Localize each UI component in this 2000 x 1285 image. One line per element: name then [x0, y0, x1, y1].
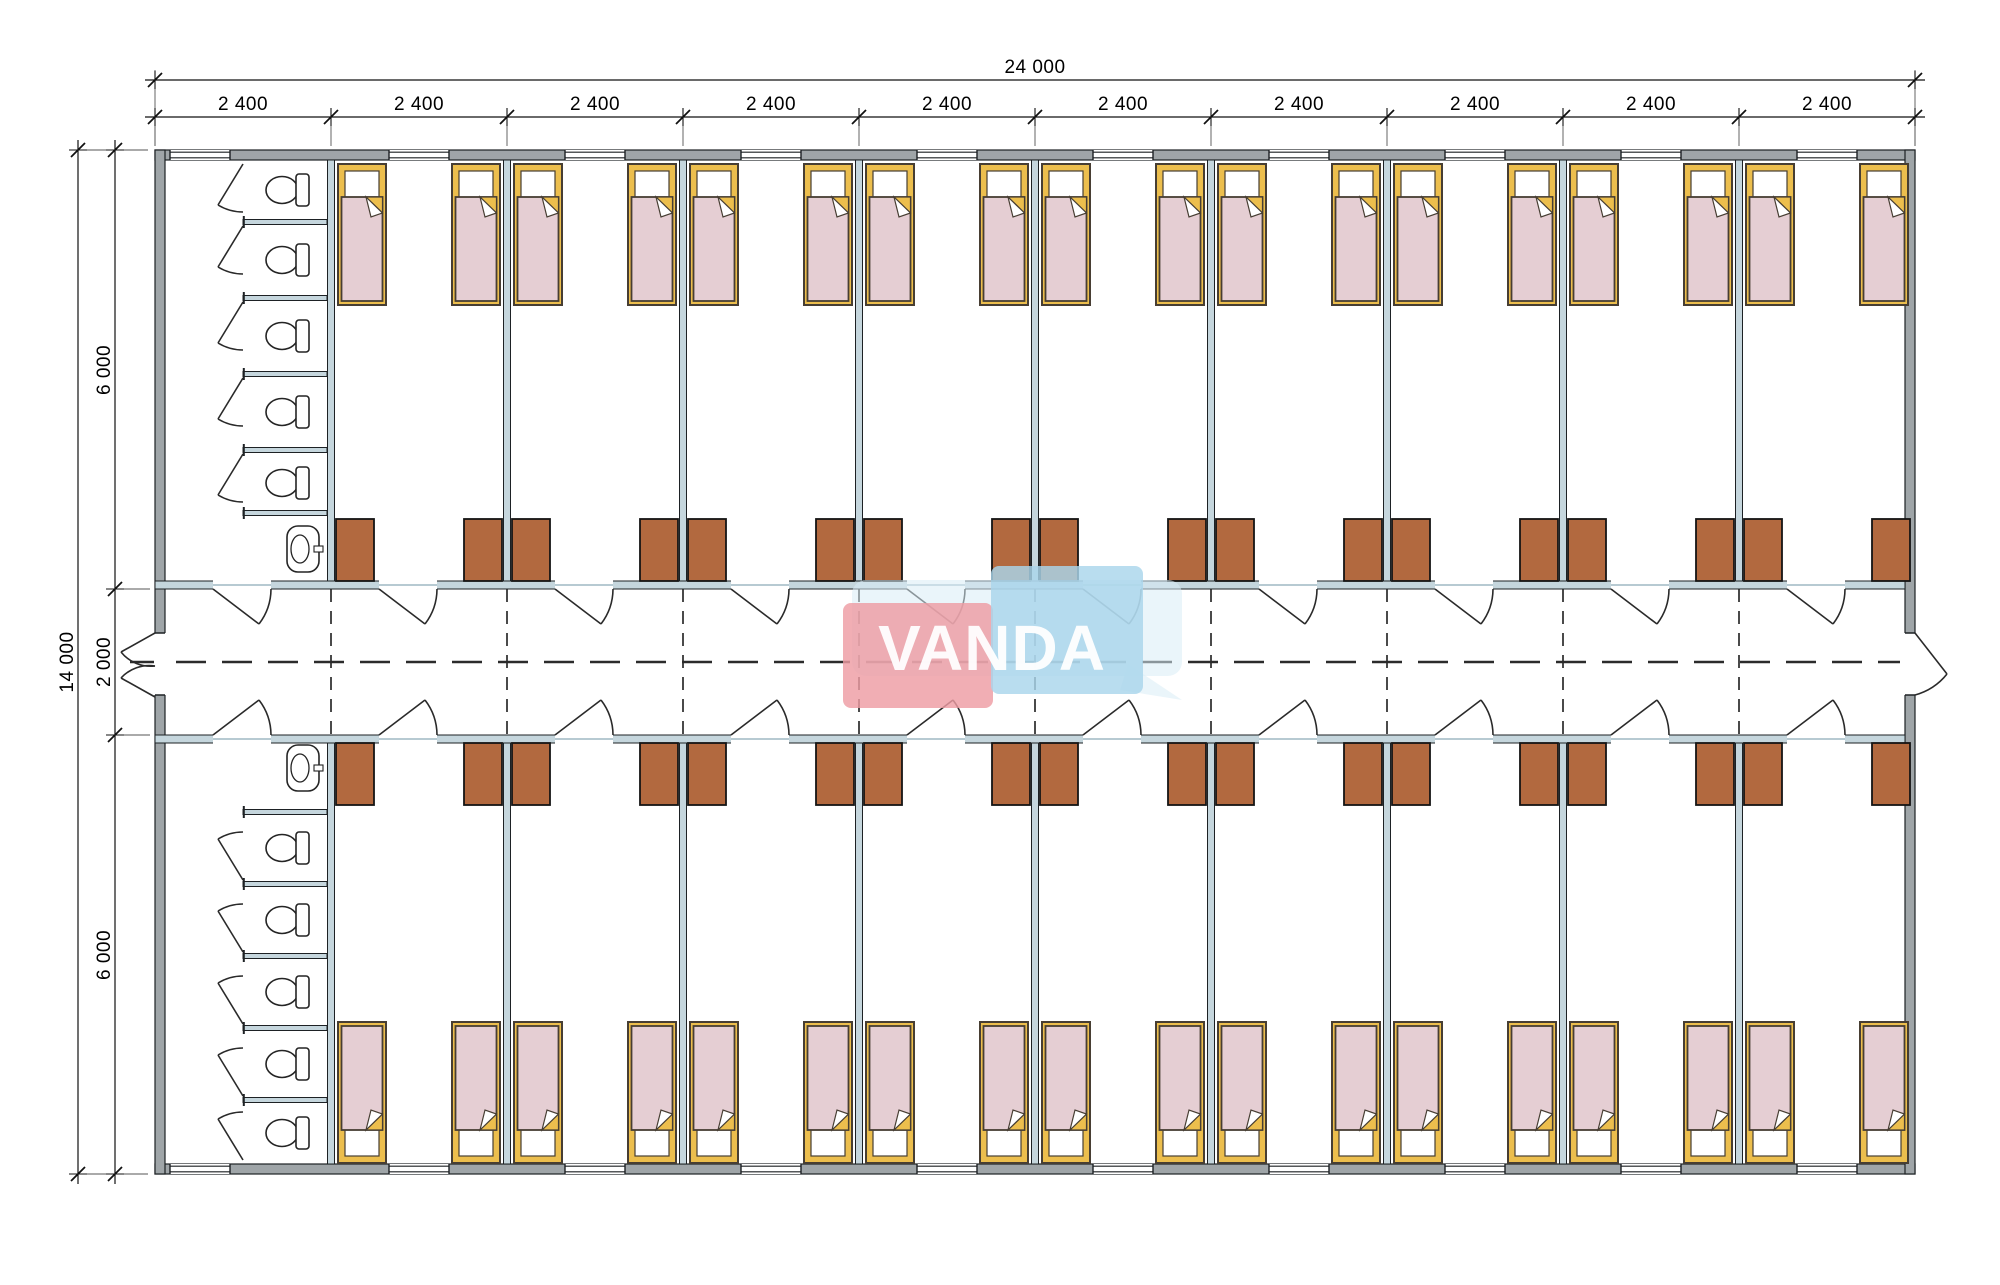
- bed-icon: [980, 164, 1028, 305]
- wardrobe-icon: [1040, 743, 1078, 805]
- wardrobe-icon: [336, 519, 374, 581]
- door-swings-bottom-row: [213, 700, 1845, 735]
- room-divider-wall: [1560, 160, 1567, 581]
- window-icon: [1445, 150, 1505, 160]
- bed-icon: [1570, 1022, 1618, 1163]
- bed-icon: [338, 1022, 386, 1163]
- window-icon: [1269, 1164, 1329, 1174]
- door-swing-icon: [731, 700, 789, 735]
- wardrobe-icon: [640, 519, 678, 581]
- room-divider-wall: [1384, 743, 1391, 1164]
- stall-partition: [243, 368, 327, 380]
- wardrobe-icon: [1216, 519, 1254, 581]
- bed-icon: [1218, 164, 1266, 305]
- room-divider-wall: [1208, 160, 1215, 581]
- bed-icon: [1860, 1022, 1908, 1163]
- door-swing-icon: [379, 700, 437, 735]
- toilet-icon: [266, 174, 309, 206]
- bed-icon: [1508, 164, 1556, 305]
- toilet-icon: [266, 1048, 309, 1080]
- door-swing-icon: [1083, 700, 1141, 735]
- wardrobe-icon: [336, 743, 374, 805]
- toilet-icon: [266, 904, 309, 936]
- wardrobe-icon: [1872, 519, 1910, 581]
- wardrobe-icon: [1392, 519, 1430, 581]
- wardrobe-icon: [512, 519, 550, 581]
- bed-icon: [980, 1022, 1028, 1163]
- bed-icon: [1746, 164, 1794, 305]
- sink-icon: [287, 745, 323, 791]
- room-divider-wall: [856, 160, 863, 581]
- room-divider-wall: [1560, 743, 1567, 1164]
- bed-icon: [1570, 164, 1618, 305]
- wardrobe-icon: [864, 519, 902, 581]
- toilet-icon: [266, 467, 309, 499]
- stall-partition: [243, 292, 327, 304]
- stall-partition: [243, 806, 327, 818]
- window-icon: [1621, 1164, 1681, 1174]
- bed-icon: [1156, 164, 1204, 305]
- wardrobe-icon: [816, 519, 854, 581]
- door-swing-icon: [1435, 700, 1493, 735]
- dim-label-overall-height: 14 000: [57, 631, 78, 692]
- window-icon: [565, 1164, 625, 1174]
- window-icon: [1093, 150, 1153, 160]
- bed-icon: [866, 164, 914, 305]
- door-swing-icon: [1611, 700, 1669, 735]
- wardrobe-icon: [688, 743, 726, 805]
- door-swing-icon: [1259, 700, 1317, 735]
- window-icon: [170, 1164, 230, 1174]
- room-divider-wall: [328, 160, 335, 581]
- bed-icon: [1684, 164, 1732, 305]
- wardrobe-icon: [1168, 743, 1206, 805]
- door-swing-icon: [1259, 589, 1317, 624]
- bed-icon: [866, 1022, 914, 1163]
- sink-icon: [287, 526, 323, 572]
- stall-door-swing-icon: [218, 454, 243, 502]
- bed-icon: [1218, 1022, 1266, 1163]
- dim-label-bay: 2 400: [922, 94, 972, 115]
- stall-door-swing-icon: [218, 976, 243, 1024]
- stall-door-swing-icon: [218, 1112, 243, 1160]
- bed-icon: [804, 164, 852, 305]
- stall-door-swing-icon: [218, 226, 243, 274]
- wardrobe-icon: [1520, 519, 1558, 581]
- bed-icon: [514, 1022, 562, 1163]
- dim-label-segment: 2 000: [94, 637, 115, 687]
- door-swing-icon: [1611, 589, 1669, 624]
- wardrobe-icon: [816, 743, 854, 805]
- bed-icon: [1042, 164, 1090, 305]
- stall-door-swing-icon: [218, 1048, 243, 1096]
- dim-label-bay: 2 400: [1098, 94, 1148, 115]
- door-swing-icon: [379, 589, 437, 624]
- bed-icon: [690, 1022, 738, 1163]
- door-swing-icon: [731, 589, 789, 624]
- room-divider-wall: [1032, 160, 1039, 581]
- toilet-icon: [266, 320, 309, 352]
- window-icon: [389, 1164, 449, 1174]
- bed-icon: [628, 164, 676, 305]
- toilet-icon: [266, 244, 309, 276]
- room-divider-wall: [504, 743, 511, 1164]
- dim-label-bay: 2 400: [1626, 94, 1676, 115]
- window-icon: [741, 1164, 801, 1174]
- bed-icon: [1684, 1022, 1732, 1163]
- bed-icon: [1508, 1022, 1556, 1163]
- stall-partition: [243, 1022, 327, 1034]
- stall-door-swing-icon: [218, 378, 243, 426]
- wardrobe-icon: [864, 743, 902, 805]
- window-icon: [917, 1164, 977, 1174]
- bed-icon: [1332, 1022, 1380, 1163]
- watermark-brand-text: VANDA: [878, 612, 1106, 684]
- wardrobe-icon: [1696, 743, 1734, 805]
- wardrobe-icon: [1568, 743, 1606, 805]
- room-divider-wall: [504, 160, 511, 581]
- bed-icon: [452, 1022, 500, 1163]
- wardrobe-icon: [1344, 743, 1382, 805]
- dim-label-bay: 2 400: [1450, 94, 1500, 115]
- toilet-icon: [266, 976, 309, 1008]
- wardrobe-icon: [464, 743, 502, 805]
- beds-top-row: [338, 164, 1908, 305]
- wardrobe-icon: [1216, 743, 1254, 805]
- bed-icon: [452, 164, 500, 305]
- watermark: VANDA: [843, 566, 1182, 708]
- bed-icon: [1394, 1022, 1442, 1163]
- door-swing-icon: [1787, 589, 1845, 624]
- window-icon: [389, 150, 449, 160]
- door-swing-icon: [213, 700, 271, 735]
- dim-label-bay: 2 400: [570, 94, 620, 115]
- bed-icon: [1860, 164, 1908, 305]
- room-divider-wall: [1384, 160, 1391, 581]
- bed-icon: [338, 164, 386, 305]
- stall-door-swing-icon: [218, 302, 243, 350]
- room-divider-wall: [856, 743, 863, 1164]
- dim-label-bay: 2 400: [1274, 94, 1324, 115]
- dim-label-segment: 6 000: [94, 345, 115, 395]
- door-swing-icon: [1787, 700, 1845, 735]
- wardrobes-bottom-row: [336, 743, 1910, 805]
- bed-icon: [1746, 1022, 1794, 1163]
- beds-bottom-row: [338, 1022, 1908, 1163]
- bed-icon: [1042, 1022, 1090, 1163]
- wardrobe-icon: [1392, 743, 1430, 805]
- room-divider-wall: [1736, 743, 1743, 1164]
- wardrobe-icon: [1696, 519, 1734, 581]
- door-swing-icon: [1435, 589, 1493, 624]
- wardrobe-icon: [992, 743, 1030, 805]
- bed-icon: [690, 164, 738, 305]
- room-divider-wall: [680, 160, 687, 581]
- stall-partition: [243, 507, 327, 519]
- room-divider-wall: [328, 743, 335, 1164]
- room-divider-wall: [1736, 160, 1743, 581]
- window-icon: [1797, 1164, 1857, 1174]
- dim-label-segment: 6 000: [94, 930, 115, 980]
- window-icon: [917, 150, 977, 160]
- floor-plan-page: 24 000 2 400 2 400 2 400 2 400 2 400 2 4…: [0, 0, 2000, 1285]
- stall-partition: [243, 444, 327, 456]
- window-icon: [1093, 1164, 1153, 1174]
- wardrobe-icon: [1568, 519, 1606, 581]
- stall-partition: [243, 216, 327, 228]
- toilet-icon: [266, 1117, 309, 1149]
- wardrobe-icon: [1744, 743, 1782, 805]
- stall-partition: [243, 1094, 327, 1106]
- window-icon: [170, 150, 230, 160]
- window-icon: [1621, 150, 1681, 160]
- wardrobe-icon: [640, 743, 678, 805]
- dim-label-bay: 2 400: [218, 94, 268, 115]
- room-divider-wall: [1208, 743, 1215, 1164]
- window-icon: [1797, 150, 1857, 160]
- wardrobe-icon: [1344, 519, 1382, 581]
- dim-label-bay: 2 400: [746, 94, 796, 115]
- wardrobe-icon: [1520, 743, 1558, 805]
- wardrobe-icon: [512, 743, 550, 805]
- bathroom-top: [218, 164, 327, 572]
- floor-plan-drawing: 24 000 2 400 2 400 2 400 2 400 2 400 2 4…: [0, 0, 2000, 1285]
- toilet-icon: [266, 832, 309, 864]
- window-icon: [1269, 150, 1329, 160]
- door-swing-icon: [213, 589, 271, 624]
- wardrobe-icon: [688, 519, 726, 581]
- stall-door-swing-icon: [218, 904, 243, 952]
- stall-door-swing-icon: [218, 164, 243, 212]
- wardrobe-icon: [1744, 519, 1782, 581]
- bed-icon: [1156, 1022, 1204, 1163]
- wardrobe-icon: [1872, 743, 1910, 805]
- window-icon: [1445, 1164, 1505, 1174]
- window-icon: [565, 150, 625, 160]
- wardrobe-icon: [1168, 519, 1206, 581]
- room-divider-wall: [680, 743, 687, 1164]
- bed-icon: [628, 1022, 676, 1163]
- room-divider-wall: [1032, 743, 1039, 1164]
- dim-label-overall-width: 24 000: [1004, 57, 1065, 78]
- bathroom-bottom: [218, 745, 327, 1160]
- bed-icon: [804, 1022, 852, 1163]
- bed-icon: [1394, 164, 1442, 305]
- wardrobe-icon: [464, 519, 502, 581]
- window-icon: [741, 150, 801, 160]
- bed-icon: [1332, 164, 1380, 305]
- dim-label-bay: 2 400: [1802, 94, 1852, 115]
- door-swing-icon: [555, 589, 613, 624]
- door-swing-icon: [555, 700, 613, 735]
- dim-label-bay: 2 400: [394, 94, 444, 115]
- bed-icon: [514, 164, 562, 305]
- toilet-icon: [266, 396, 309, 428]
- stall-partition: [243, 950, 327, 962]
- stall-door-swing-icon: [218, 832, 243, 880]
- stall-partition: [243, 878, 327, 890]
